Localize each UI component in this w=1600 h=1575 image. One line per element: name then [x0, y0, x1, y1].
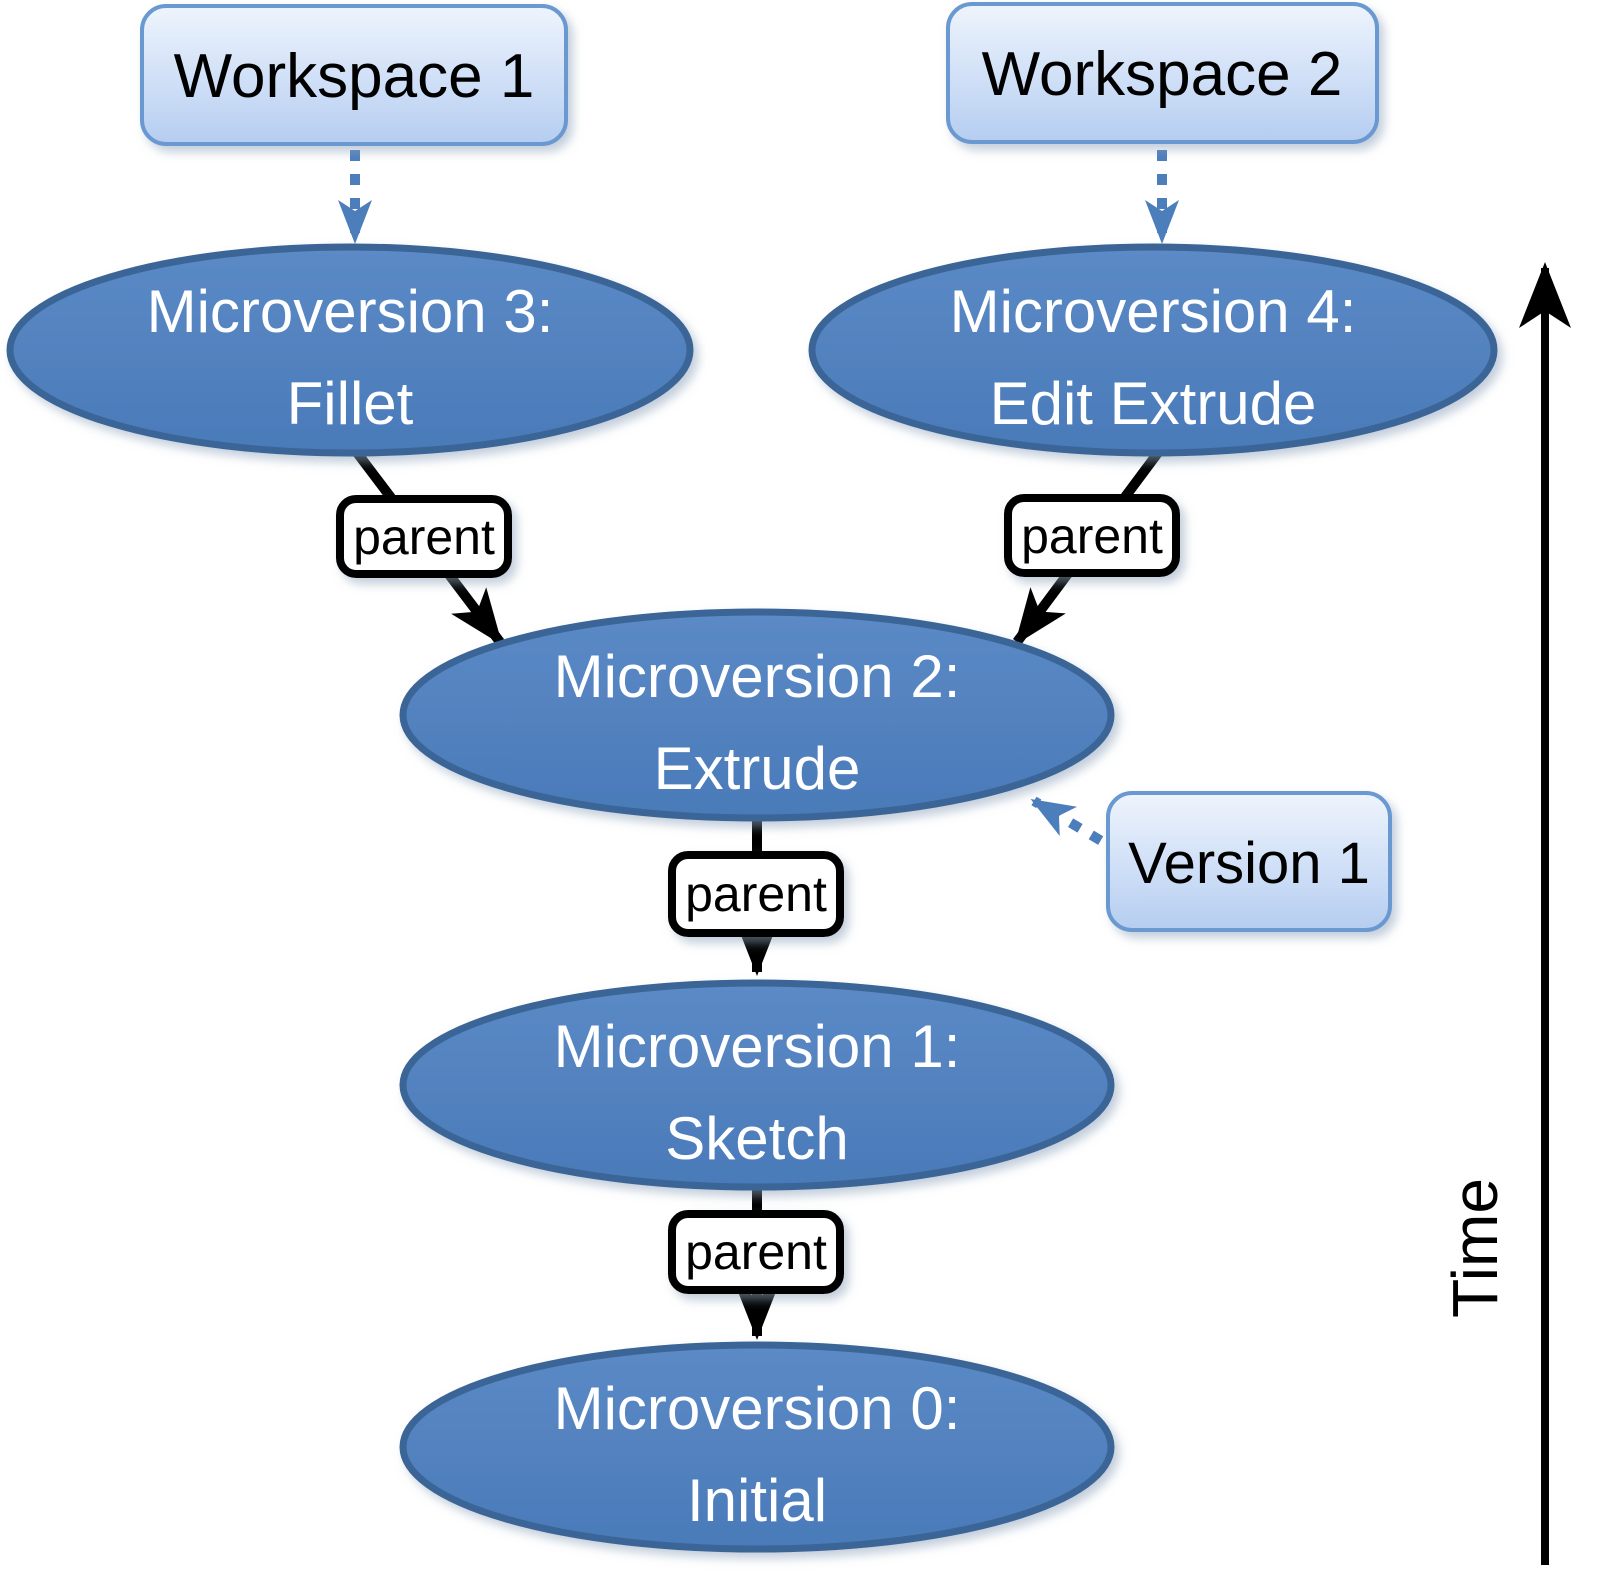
node-microversion-3-label-line1: Microversion 3: — [147, 278, 554, 345]
version-1-label: Version 1 — [1128, 831, 1370, 896]
microversion-graph-figure: Microversion 3: Fillet Microversion 4: E… — [0, 0, 1600, 1570]
node-microversion-2-label-line2: Extrude — [654, 735, 861, 802]
node-microversion-3-label-line2: Fillet — [287, 370, 414, 437]
workspace-1-label: Workspace 1 — [174, 42, 535, 111]
workspace-2-label: Workspace 2 — [982, 40, 1343, 109]
parent-label-mv3: parent — [353, 509, 495, 565]
node-microversion-4-label-line2: Edit Extrude — [990, 370, 1317, 437]
parent-label-mv1: parent — [685, 1224, 827, 1280]
node-microversion-0-label-line1: Microversion 0: — [554, 1375, 961, 1442]
microversion-graph-canvas: Microversion 3: Fillet Microversion 4: E… — [0, 0, 1600, 1570]
parent-label-mv2: parent — [685, 866, 827, 922]
node-microversion-4-label-line1: Microversion 4: — [950, 278, 1357, 345]
parent-label-mv4: parent — [1021, 508, 1163, 564]
node-microversion-1-label-line2: Sketch — [665, 1105, 848, 1172]
node-microversion-0-label-line2: Initial — [687, 1467, 827, 1534]
time-axis-label: Time — [1439, 1178, 1511, 1318]
node-microversion-1-label-line1: Microversion 1: — [554, 1013, 961, 1080]
node-microversion-2-label-line1: Microversion 2: — [554, 643, 961, 710]
